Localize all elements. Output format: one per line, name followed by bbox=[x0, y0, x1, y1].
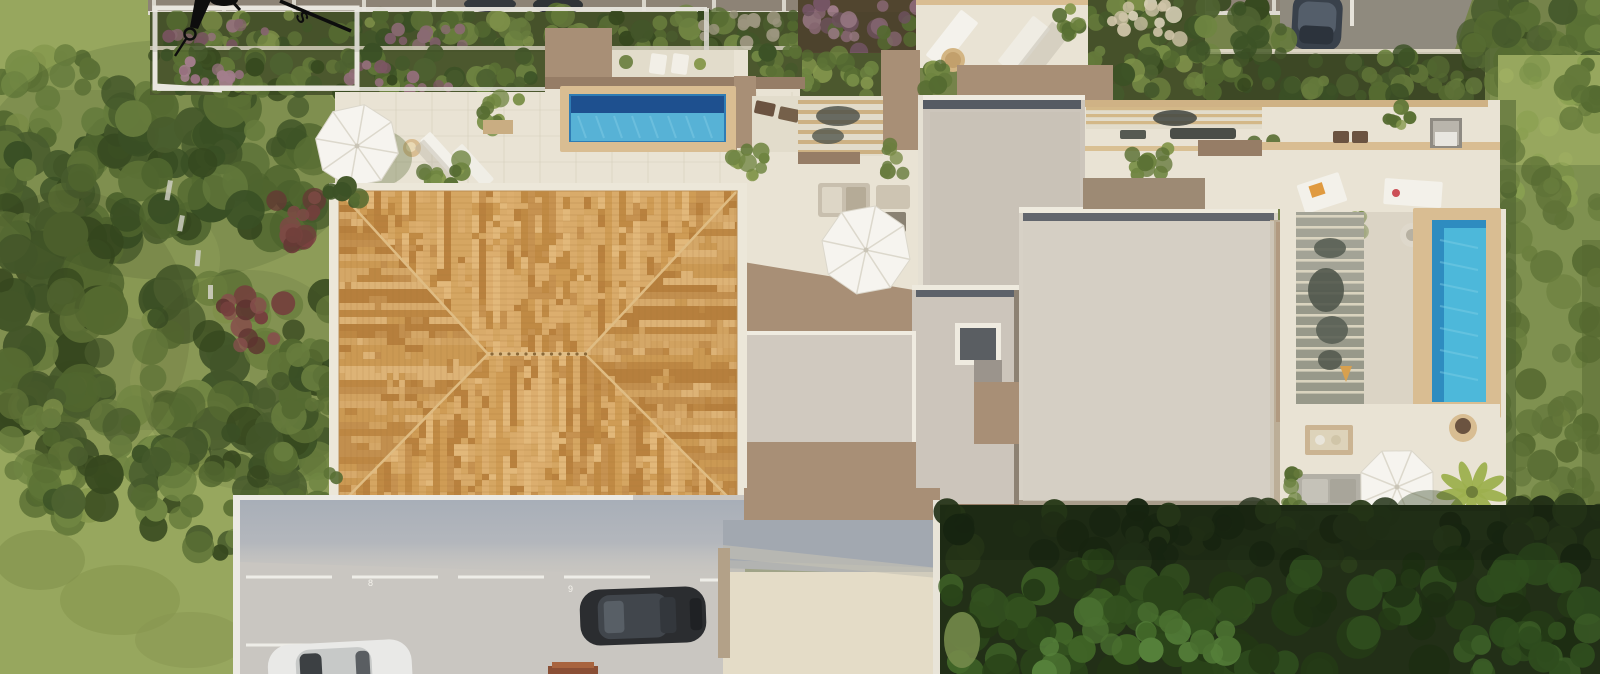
svg-text:9: 9 bbox=[568, 584, 573, 594]
svg-text:8: 8 bbox=[368, 578, 373, 588]
